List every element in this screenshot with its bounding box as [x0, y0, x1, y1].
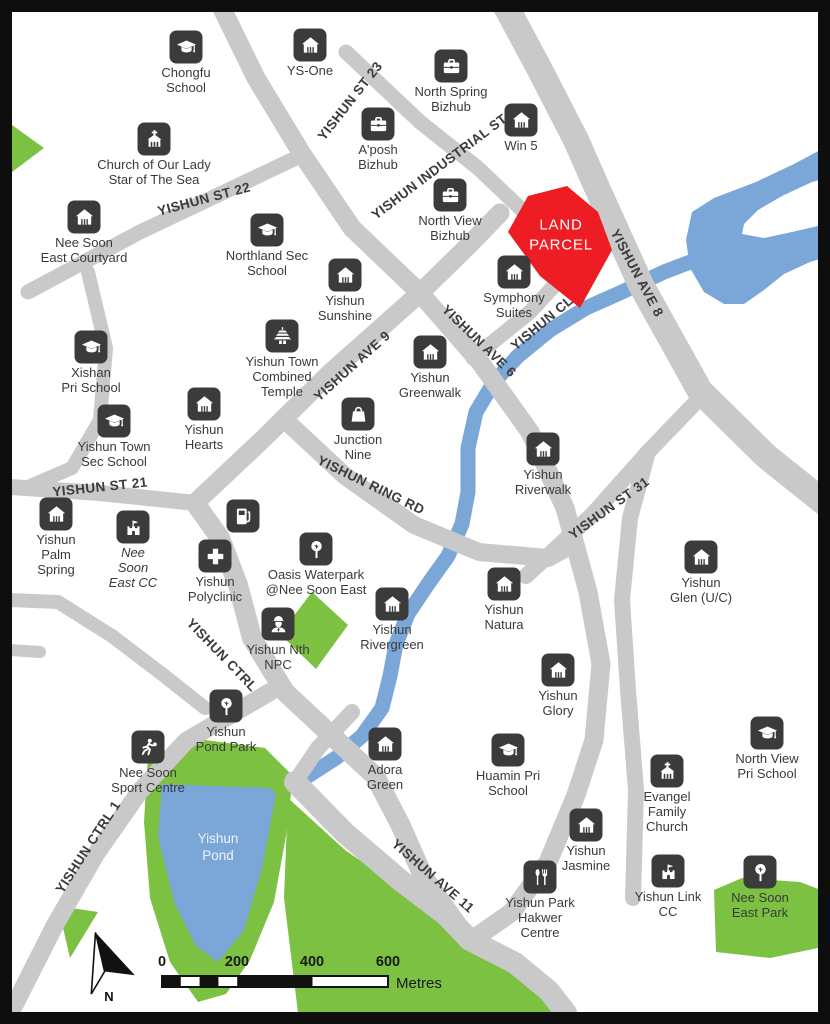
medical-cross-icon: [199, 540, 232, 573]
home-icon: [570, 809, 603, 842]
poi-label: Win 5: [504, 138, 537, 153]
home-icon: [369, 728, 402, 761]
police-icon: [262, 608, 295, 641]
poi-label: Yishun Hearts: [184, 422, 223, 452]
road-label-yishun-ring-rd: YISHUN RING RD: [315, 453, 427, 518]
church-icon: [651, 755, 684, 788]
poi-label: Yishun Nth NPC: [246, 642, 309, 672]
poi-label: North Spring Bizhub: [415, 84, 488, 114]
poi-label: Symphony Suites: [483, 290, 544, 320]
tree-icon: [210, 690, 243, 723]
poi-label: Chongfu School: [161, 65, 210, 95]
poi-label: Huamin Pri School: [476, 768, 540, 798]
yishun-location-map: N 0 200 400 600 Metres YISHUN ST 23 YISH…: [0, 0, 830, 1024]
briefcase-icon: [362, 108, 395, 141]
labels-layer: YISHUN ST 23 YISHUN ST 22 YISHUN INDUSTR…: [12, 12, 818, 1012]
poi-label: Yishun Riverwalk: [515, 467, 571, 497]
fuel-pump-icon: [227, 500, 260, 533]
poi-label: Xishan Pri School: [61, 365, 120, 395]
poi-label: YS-One: [287, 63, 333, 78]
road-label-yishun-st-31: YISHUN ST 31: [566, 474, 652, 542]
briefcase-icon: [434, 179, 467, 212]
home-icon: [68, 201, 101, 234]
poi-label: North View Bizhub: [418, 213, 481, 243]
poi-label: North View Pri School: [735, 751, 798, 781]
briefcase-icon: [435, 50, 468, 83]
poi-label: Nee Soon East CC: [109, 545, 157, 590]
poi-label: Yishun Park Hakwer Centre: [505, 895, 575, 940]
poi-label: Yishun Sunshine: [318, 293, 372, 323]
temple-icon: [266, 320, 299, 353]
home-icon: [294, 29, 327, 62]
cutlery-icon: [524, 861, 557, 894]
tree-icon: [300, 533, 333, 566]
road-label-yishun-ave-8: YISHUN AVE 8: [608, 227, 667, 320]
home-icon: [488, 568, 521, 601]
poi-label: Yishun Natura: [484, 602, 523, 632]
home-icon: [527, 433, 560, 466]
poi-label: Yishun Polyclinic: [188, 574, 242, 604]
road-label-yishun-ave-11: YISHUN AVE 11: [389, 836, 478, 916]
poi-label: A'posh Bizhub: [358, 142, 398, 172]
poi-label: Evangel Family Church: [644, 789, 691, 834]
church-icon: [138, 123, 171, 156]
home-icon: [414, 336, 447, 369]
poi-label: Oasis Waterpark @Nee Soon East: [266, 567, 367, 597]
yishun-pond-label: Yishun Pond: [198, 831, 239, 865]
graduation-cap-icon: [75, 331, 108, 364]
land-parcel-label: LAND PARCEL: [529, 216, 593, 255]
poi-label: Church of Our Lady Star of The Sea: [97, 157, 210, 187]
shopping-bag-icon: [342, 398, 375, 431]
runner-icon: [132, 731, 165, 764]
home-icon: [542, 654, 575, 687]
home-icon: [376, 588, 409, 621]
home-icon: [329, 259, 362, 292]
graduation-cap-icon: [492, 734, 525, 767]
road-label-yishun-st-21: YISHUN ST 21: [52, 475, 149, 500]
poi-label: Yishun Town Sec School: [78, 439, 151, 469]
poi-label: Yishun Jasmine: [562, 843, 610, 873]
home-icon: [188, 388, 221, 421]
road-label-yishun-ave-9: YISHUN AVE 9: [311, 328, 393, 404]
road-label-yishun-ctrl-1: YISHUN CTRL 1: [53, 798, 124, 896]
poi-label: Yishun Link CC: [635, 889, 702, 919]
fort-flag-icon: [652, 855, 685, 888]
poi-label: Yishun Rivergreen: [360, 622, 424, 652]
graduation-cap-icon: [98, 405, 131, 438]
poi-label: Junction Nine: [334, 432, 382, 462]
home-icon: [685, 541, 718, 574]
fort-flag-icon: [117, 511, 150, 544]
poi-label: Yishun Greenwalk: [399, 370, 461, 400]
poi-label: Yishun Glen (U/C): [670, 575, 732, 605]
home-icon: [505, 104, 538, 137]
home-icon: [40, 498, 73, 531]
poi-label: Nee Soon Sport Centre: [111, 765, 185, 795]
home-icon: [498, 256, 531, 289]
graduation-cap-icon: [251, 214, 284, 247]
poi-label: Yishun Pond Park: [196, 724, 257, 754]
poi-label: Yishun Palm Spring: [36, 532, 75, 577]
poi-label: Northland Sec School: [226, 248, 308, 278]
tree-icon: [744, 856, 777, 889]
graduation-cap-icon: [751, 717, 784, 750]
poi-label: Nee Soon East Courtyard: [41, 235, 128, 265]
poi-label: Adora Green: [367, 762, 403, 792]
poi-label: Nee Soon East Park: [731, 890, 789, 920]
graduation-cap-icon: [170, 31, 203, 64]
poi-label: Yishun Glory: [538, 688, 577, 718]
poi-label: Yishun Town Combined Temple: [246, 354, 319, 399]
